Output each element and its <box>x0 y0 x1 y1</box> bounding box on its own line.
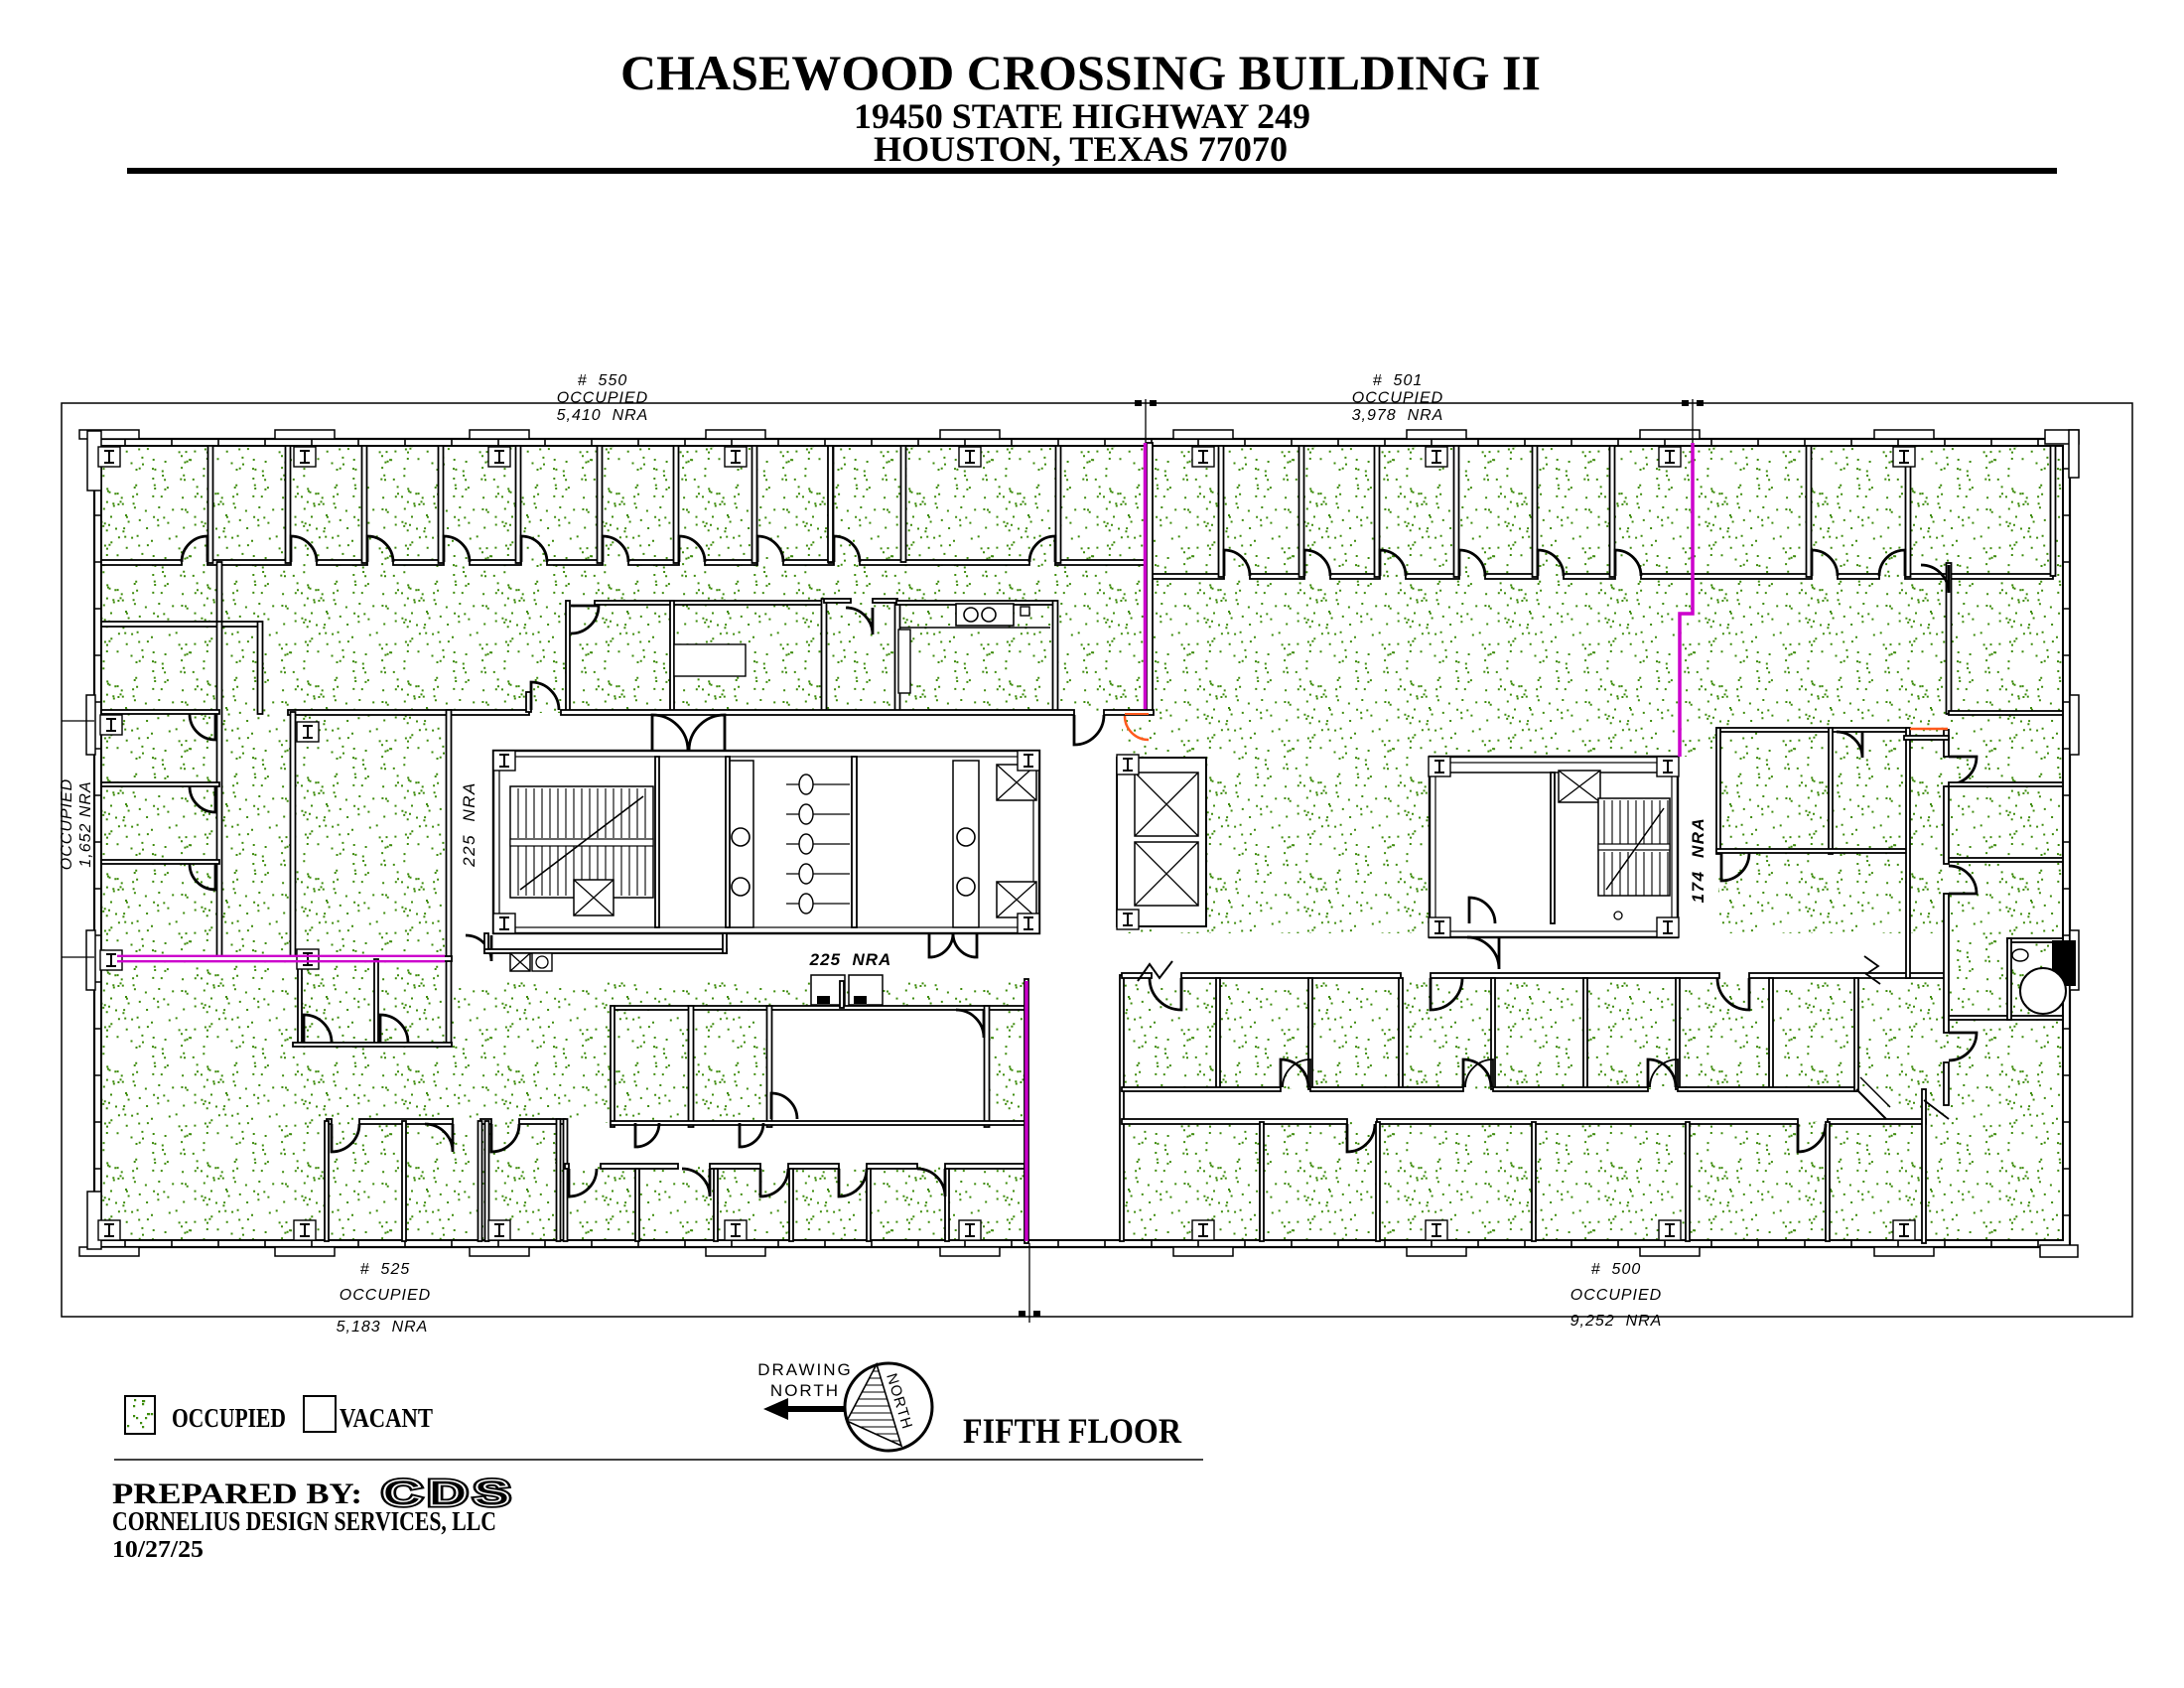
svg-text:CHASEWOOD CROSSING BUILDING II: CHASEWOOD CROSSING BUILDING II <box>620 45 1541 100</box>
svg-text:FIFTH FLOOR: FIFTH FLOOR <box>963 1411 1182 1451</box>
svg-text:# 525: # 525 <box>360 1261 410 1278</box>
svg-text:9,252 NRA: 9,252 NRA <box>1570 1313 1663 1330</box>
svg-text:10/27/25: 10/27/25 <box>112 1537 204 1563</box>
svg-text:OCCUPIED: OCCUPIED <box>59 778 75 870</box>
svg-text:# 500: # 500 <box>1591 1261 1641 1278</box>
svg-text:OCCUPIED: OCCUPIED <box>557 390 648 407</box>
svg-text:OCCUPIED: OCCUPIED <box>1570 1287 1662 1304</box>
svg-text:1,652 NRA: 1,652 NRA <box>77 780 94 867</box>
svg-text:OCCUPIED: OCCUPIED <box>340 1287 431 1304</box>
svg-text:OCCUPIED: OCCUPIED <box>1352 390 1443 407</box>
svg-text:DRAWING: DRAWING <box>757 1360 853 1379</box>
svg-text:VACANT: VACANT <box>340 1403 433 1433</box>
svg-text:225 NRA: 225 NRA <box>460 781 478 868</box>
svg-text:5,410 NRA: 5,410 NRA <box>557 407 649 424</box>
svg-text:CORNELIUS DESIGN SERVICES, LLC: CORNELIUS DESIGN SERVICES, LLC <box>112 1506 496 1536</box>
svg-text:225 NRA: 225 NRA <box>809 950 892 969</box>
svg-text:3,978 NRA: 3,978 NRA <box>1352 407 1444 424</box>
svg-text:# 550: # 550 <box>578 372 627 389</box>
svg-text:5,183 NRA: 5,183 NRA <box>337 1319 429 1336</box>
svg-text:OCCUPIED: OCCUPIED <box>172 1403 286 1433</box>
svg-text:NORTH: NORTH <box>770 1381 840 1400</box>
svg-text:174 NRA: 174 NRA <box>1689 817 1707 904</box>
svg-text:# 501: # 501 <box>1373 372 1423 389</box>
svg-text:HOUSTON, TEXAS 77070: HOUSTON, TEXAS 77070 <box>874 129 1288 169</box>
